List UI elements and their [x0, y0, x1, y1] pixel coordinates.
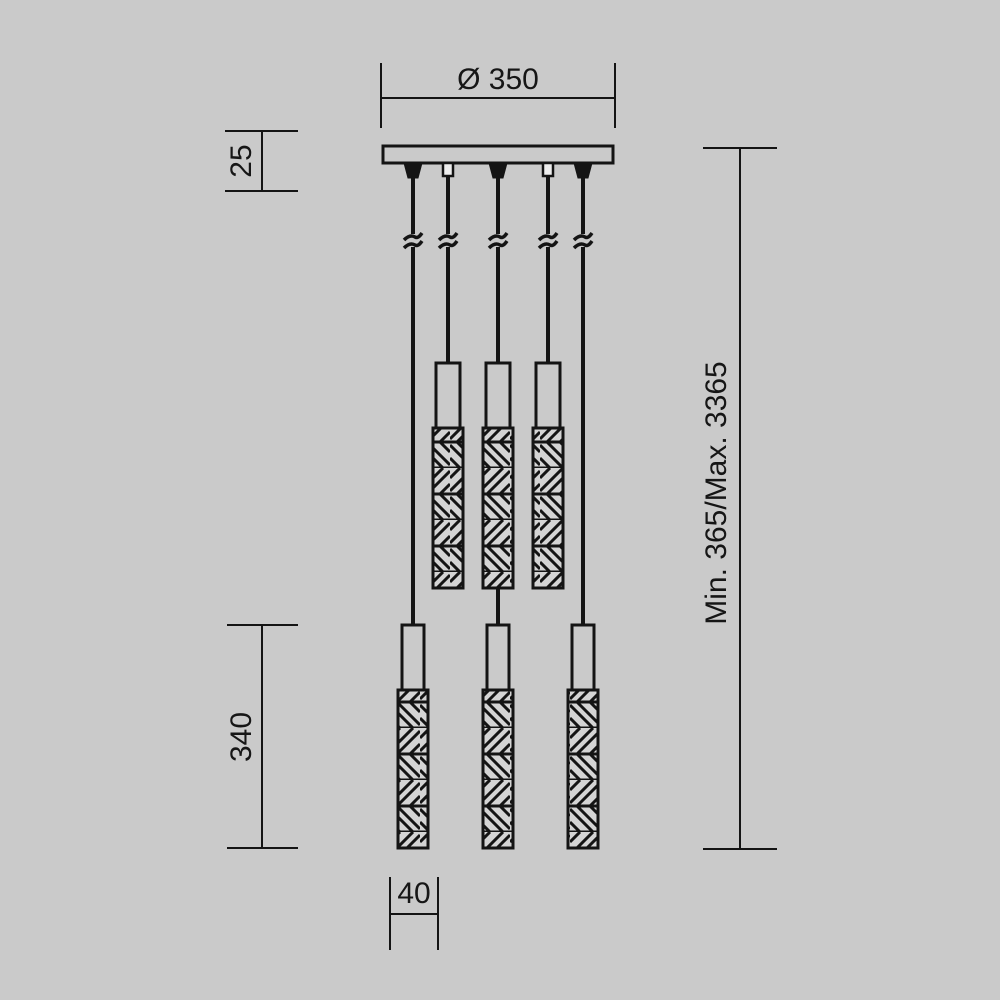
pendant-shade-lower: [568, 625, 598, 848]
shade-socket: [487, 625, 509, 690]
cable-break-icon: [539, 233, 557, 248]
pendant-lamp-diagram: Ø 350 25 340 Min. 365/Max. 3365 40: [0, 0, 1000, 1000]
pendant-shade-lower: [398, 625, 428, 848]
cable-connector: [574, 163, 592, 178]
cable-connector: [443, 163, 453, 176]
shade-crystal: [483, 690, 513, 848]
pendant-shade-upper: [533, 363, 563, 588]
shade-crystal: [533, 428, 563, 588]
cable-break-marks: [404, 233, 592, 248]
suspension-height-label: Min. 365/Max. 3365: [700, 361, 733, 624]
cable-connector: [404, 163, 422, 178]
cable-connectors: [404, 163, 592, 178]
shade-crystal: [483, 428, 513, 588]
pendant-shade-upper: [483, 363, 513, 588]
canopy-diameter-label: Ø 350: [457, 63, 539, 96]
shade-crystal: [398, 690, 428, 848]
canopy-height-label: 25: [225, 144, 258, 177]
dimension-drawing: Ø 350 25 340 Min. 365/Max. 3365 40: [0, 0, 1000, 1000]
cable-break-icon: [574, 233, 592, 248]
shade-socket: [402, 625, 424, 690]
shade-diameter-label: 40: [397, 877, 430, 910]
ceiling-canopy: [383, 146, 613, 163]
shade-socket: [572, 625, 594, 690]
pendant-shade-upper: [433, 363, 463, 588]
cable-connector: [489, 163, 507, 178]
pendant-shade-lower: [483, 625, 513, 848]
shade-length-label: 340: [225, 712, 258, 762]
lower-pendant-shades: [398, 625, 598, 848]
cable-break-icon: [439, 233, 457, 248]
shade-crystal: [433, 428, 463, 588]
cable-break-icon: [489, 233, 507, 248]
cable-connector: [543, 163, 553, 176]
shade-socket: [536, 363, 560, 428]
shade-socket: [436, 363, 460, 428]
cable-break-icon: [404, 233, 422, 248]
shade-crystal: [568, 690, 598, 848]
upper-pendant-shades: [433, 363, 563, 588]
shade-socket: [486, 363, 510, 428]
